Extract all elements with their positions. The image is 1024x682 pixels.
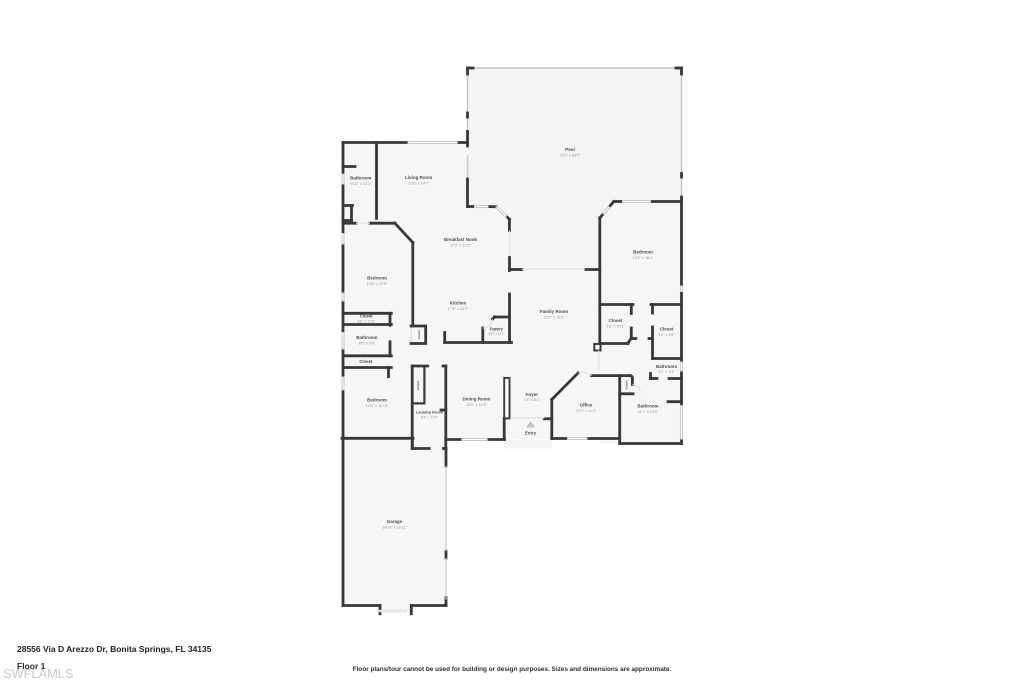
svg-text:16'2" x 19'3": 16'2" x 19'3": [544, 316, 565, 320]
svg-text:5'10" x 14'1": 5'10" x 14'1": [350, 182, 371, 186]
svg-text:Bedroom: Bedroom: [367, 276, 387, 281]
svg-text:Family Room: Family Room: [540, 309, 568, 314]
svg-text:Breakfast Nook: Breakfast Nook: [444, 237, 478, 242]
svg-text:Bedroom: Bedroom: [367, 398, 387, 403]
svg-text:26'1" x 34'7": 26'1" x 34'7": [560, 154, 581, 158]
svg-text:Closet: Closet: [360, 314, 373, 319]
svg-text:Bathroom: Bathroom: [637, 404, 658, 409]
svg-text:6'5" x 1'10": 6'5" x 1'10": [357, 319, 375, 323]
svg-text:Office: Office: [580, 403, 593, 408]
svg-text:17'6" x 13'2": 17'6" x 13'2": [448, 307, 469, 311]
svg-text:4'9" x 6'7": 4'9" x 6'7": [488, 332, 505, 336]
svg-text:5'8" x 6'11": 5'8" x 6'11": [606, 325, 625, 329]
svg-text:13'9" x 16'1": 13'9" x 16'1": [633, 256, 654, 260]
svg-text:11'1" x 14'6": 11'1" x 14'6": [638, 410, 659, 414]
svg-text:Closet: Closet: [609, 318, 623, 323]
svg-text:5'5" x 9'8": 5'5" x 9'8": [658, 333, 675, 337]
svg-text:6'6" x 14'9": 6'6" x 14'9": [421, 415, 439, 419]
svg-text:Garage: Garage: [387, 519, 403, 524]
svg-text:Entry: Entry: [525, 430, 537, 435]
svg-text:9'1" x 4'4": 9'1" x 4'4": [658, 370, 675, 374]
svg-text:17'5" x 12'6": 17'5" x 12'6": [450, 243, 471, 247]
svg-text:Bedroom: Bedroom: [633, 250, 653, 255]
svg-text:Laundry Room: Laundry Room: [416, 411, 443, 415]
svg-text:Closet: Closet: [660, 327, 674, 332]
svg-text:12'2" x 11'2": 12'2" x 11'2": [576, 409, 597, 413]
svg-text:Bathroom: Bathroom: [356, 335, 377, 340]
svg-text:Dining Room: Dining Room: [463, 397, 491, 402]
svg-text:Pantry: Pantry: [490, 326, 504, 331]
svg-text:Bathroom: Bathroom: [656, 364, 677, 369]
svg-text:7'8" x 6'1": 7'8" x 6'1": [523, 398, 540, 402]
svg-text:16'6" x 14'7": 16'6" x 14'7": [408, 181, 429, 185]
svg-text:Kitchen: Kitchen: [450, 301, 467, 306]
svg-text:12'8" x 12'10": 12'8" x 12'10": [366, 404, 390, 408]
svg-text:Closet: Closet: [416, 381, 420, 390]
svg-text:Closet: Closet: [359, 359, 372, 364]
svg-text:8'5" x 9'4": 8'5" x 9'4": [359, 341, 376, 345]
svg-text:Pool: Pool: [565, 147, 575, 152]
svg-text:18'10" x 22'11": 18'10" x 22'11": [382, 526, 407, 530]
svg-text:Closet: Closet: [417, 330, 421, 339]
svg-text:Living Room: Living Room: [405, 175, 432, 180]
svg-text:Closet: Closet: [625, 380, 629, 389]
svg-text:13'6" x 20'8": 13'6" x 20'8": [367, 282, 388, 286]
svg-text:10'9" x 12'4": 10'9" x 12'4": [466, 403, 487, 407]
svg-text:Bathroom: Bathroom: [350, 176, 371, 181]
svg-text:Foyer: Foyer: [526, 392, 539, 397]
